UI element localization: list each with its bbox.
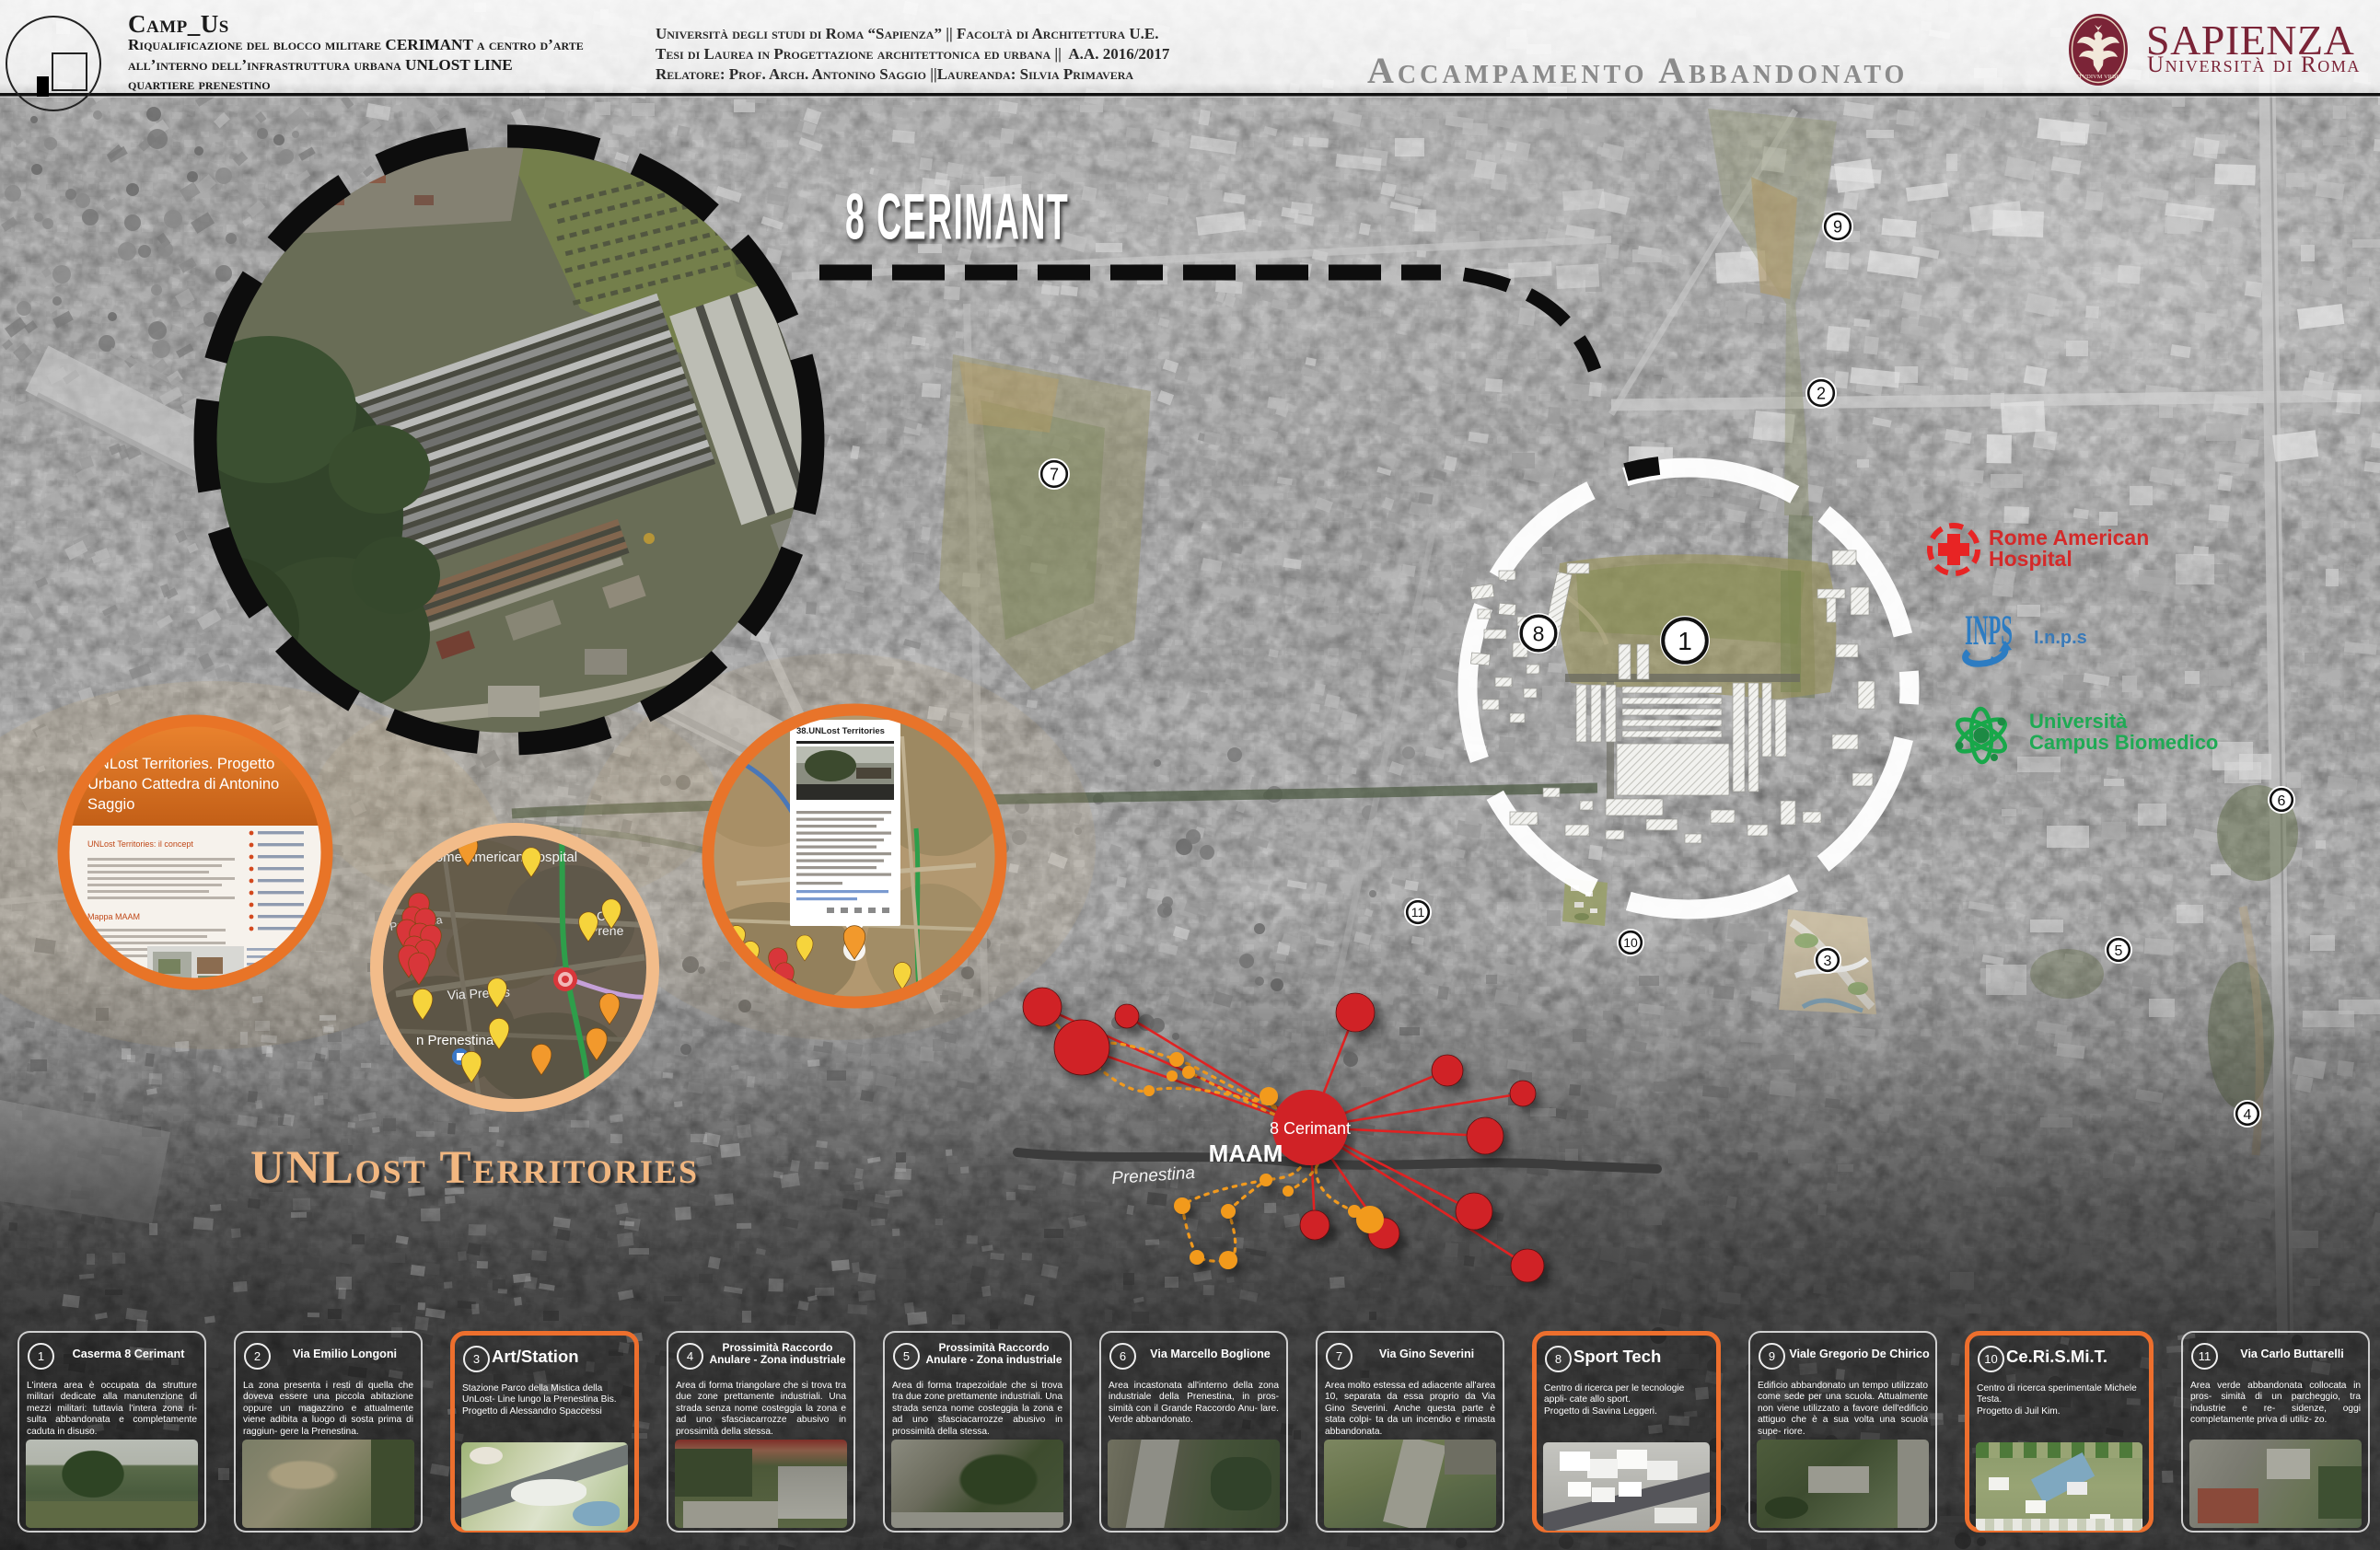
svg-text:Campus Biomedico: Campus Biomedico (2029, 731, 2218, 754)
svg-text:7: 7 (1050, 465, 1059, 483)
svg-text:UNLost Territories. Progetto: UNLost Territories. Progetto (87, 756, 274, 772)
svg-text:3: 3 (1824, 954, 1832, 969)
svg-text:UNLost Territories: il concept: UNLost Territories: il concept (87, 839, 193, 849)
svg-text:6: 6 (2278, 793, 2286, 809)
svg-text:8: 8 (1533, 621, 1545, 645)
svg-text:11: 11 (1411, 905, 1425, 920)
svg-text:Mappa MAAM: Mappa MAAM (87, 912, 140, 921)
svg-text:4: 4 (2244, 1107, 2252, 1123)
svg-text:I.n.p.s: I.n.p.s (2034, 628, 2087, 648)
svg-text:Hospital: Hospital (1989, 547, 2072, 571)
svg-text:38.UNLost Territories: 38.UNLost Territories (796, 726, 885, 736)
svg-text:1: 1 (1678, 627, 1692, 655)
svg-text:8 Cerimant: 8 Cerimant (1270, 1119, 1351, 1138)
svg-text:2: 2 (1817, 384, 1826, 402)
svg-text:n Prenestina: n Prenestina (416, 1033, 494, 1048)
svg-text:5: 5 (2115, 943, 2123, 959)
svg-text:STVDIVM VRBIS: STVDIVM VRBIS (2075, 74, 2122, 80)
svg-text:10: 10 (1623, 935, 1638, 950)
svg-text:MAAM: MAAM (1209, 1139, 1283, 1167)
svg-text:Università: Università (2029, 710, 2128, 733)
svg-text:Urbano Cattedra di Antonino: Urbano Cattedra di Antonino (87, 776, 279, 792)
svg-text:9: 9 (1833, 217, 1842, 236)
svg-text:Saggio: Saggio (87, 796, 134, 813)
